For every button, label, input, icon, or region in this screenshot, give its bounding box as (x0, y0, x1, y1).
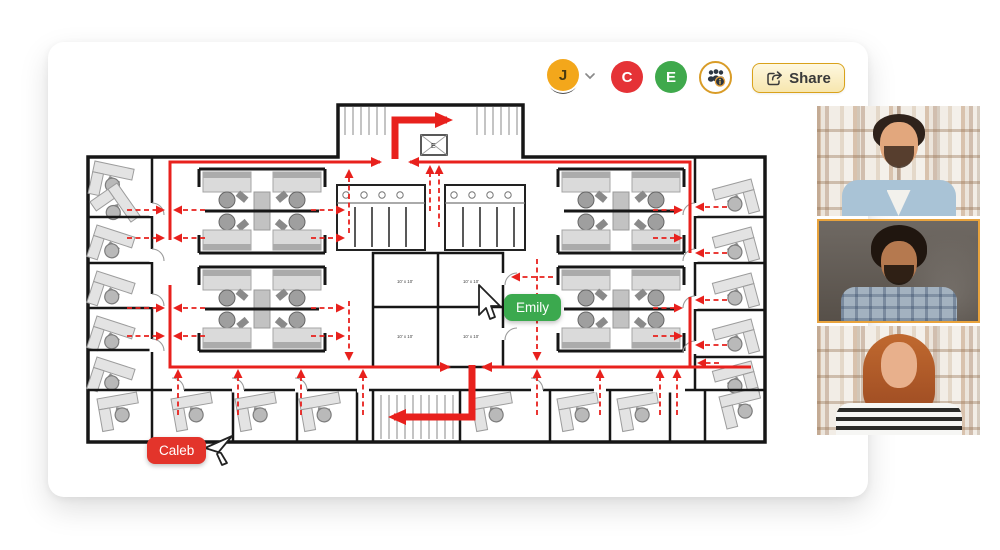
emily-cursor-icon (477, 284, 503, 322)
collaborators-info-icon[interactable] (699, 61, 732, 94)
floorplan-diagram[interactable]: E (83, 95, 773, 455)
participant-3-portrait (817, 326, 980, 435)
video-tile-participant-1[interactable] (817, 106, 980, 216)
collaborator-avatar-c[interactable]: C (611, 61, 643, 93)
collaborator-avatar-e[interactable]: E (655, 61, 687, 93)
video-tile-participant-2-active[interactable] (817, 219, 980, 323)
participant-2-portrait (819, 221, 978, 321)
share-button[interactable]: Share (752, 63, 845, 93)
share-icon (766, 70, 783, 87)
room-label: 10' x 10' (397, 334, 413, 339)
user-avatar-j[interactable]: J (547, 59, 579, 91)
caleb-cursor-label: Caleb (147, 437, 206, 464)
participant-1-portrait (817, 106, 980, 216)
elevator-label: E (431, 143, 436, 150)
room-label: 10' x 10' (463, 334, 479, 339)
emily-cursor-label: Emily (504, 294, 561, 321)
chevron-down-icon[interactable] (584, 70, 596, 82)
share-button-label: Share (789, 70, 831, 87)
video-tile-participant-3[interactable] (817, 326, 980, 435)
room-label: 10' x 10' (397, 279, 413, 284)
